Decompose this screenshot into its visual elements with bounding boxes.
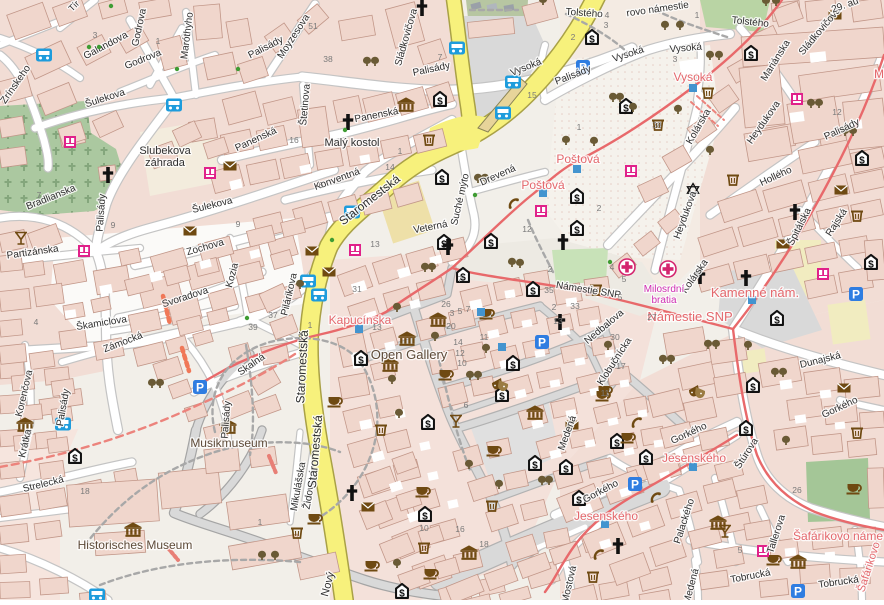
svg-text:38: 38 xyxy=(323,54,333,64)
svg-text:Šafárikovo náme: Šafárikovo náme xyxy=(793,528,883,543)
svg-text:Musikmuseum: Musikmuseum xyxy=(190,436,267,450)
svg-text:18: 18 xyxy=(479,539,489,549)
svg-text:Open Gallery: Open Gallery xyxy=(371,347,448,362)
svg-text:51: 51 xyxy=(308,21,318,31)
svg-text:31: 31 xyxy=(352,284,362,294)
svg-text:5: 5 xyxy=(738,545,743,555)
svg-text:7: 7 xyxy=(466,304,471,314)
svg-text:Kamenné nám.: Kamenné nám. xyxy=(711,285,799,300)
svg-text:7: 7 xyxy=(37,190,42,200)
svg-text:Jesenského: Jesenského xyxy=(662,451,726,465)
svg-text:7: 7 xyxy=(438,52,443,62)
svg-text:Kapucínska: Kapucínska xyxy=(329,313,392,327)
svg-text:Slubekova: Slubekova xyxy=(139,145,191,157)
svg-text:13: 13 xyxy=(372,322,382,332)
svg-text:3: 3 xyxy=(604,20,609,30)
svg-text:12: 12 xyxy=(522,224,532,234)
svg-text:1: 1 xyxy=(577,122,582,132)
svg-text:16: 16 xyxy=(289,135,299,145)
svg-text:11: 11 xyxy=(480,332,489,342)
svg-text:Milosrdní: Milosrdní xyxy=(644,284,685,295)
svg-text:39: 39 xyxy=(248,322,258,332)
svg-text:2: 2 xyxy=(571,32,576,42)
svg-text:7: 7 xyxy=(458,274,463,284)
svg-text:2: 2 xyxy=(548,264,553,274)
svg-text:Poštová: Poštová xyxy=(521,178,565,192)
svg-text:10: 10 xyxy=(457,358,467,368)
svg-text:4: 4 xyxy=(605,10,610,20)
svg-text:37: 37 xyxy=(268,310,278,320)
svg-text:Námestie SNP: Námestie SNP xyxy=(647,309,732,324)
svg-text:14: 14 xyxy=(385,162,395,172)
svg-text:Jesenského: Jesenského xyxy=(574,509,638,523)
svg-text:2: 2 xyxy=(552,302,557,312)
svg-text:1: 1 xyxy=(308,320,313,330)
svg-text:4: 4 xyxy=(34,317,39,327)
svg-text:2: 2 xyxy=(597,203,602,213)
svg-text:13: 13 xyxy=(370,239,380,249)
svg-text:30: 30 xyxy=(610,332,620,342)
svg-text:26: 26 xyxy=(792,485,802,495)
svg-text:Vysoká: Vysoká xyxy=(674,70,713,84)
svg-text:17: 17 xyxy=(616,361,626,371)
svg-text:bratia: bratia xyxy=(651,295,676,306)
svg-text:Historisches Museum: Historisches Museum xyxy=(78,538,193,552)
svg-text:9: 9 xyxy=(236,219,241,229)
svg-text:12: 12 xyxy=(455,348,465,358)
svg-text:20: 20 xyxy=(446,321,456,331)
svg-text:16: 16 xyxy=(455,524,465,534)
svg-text:6: 6 xyxy=(464,400,469,410)
svg-text:6: 6 xyxy=(319,180,324,190)
svg-text:1: 1 xyxy=(398,146,403,156)
svg-text:1: 1 xyxy=(156,36,161,46)
svg-text:3: 3 xyxy=(93,30,98,40)
svg-text:13: 13 xyxy=(553,316,563,326)
svg-text:M: M xyxy=(874,67,884,81)
svg-text:3: 3 xyxy=(298,332,303,342)
svg-text:18: 18 xyxy=(80,486,90,496)
svg-text:14: 14 xyxy=(453,337,463,347)
svg-text:9: 9 xyxy=(111,220,116,230)
svg-text:Poštová: Poštová xyxy=(556,152,600,166)
svg-text:12: 12 xyxy=(832,107,842,117)
svg-text:38: 38 xyxy=(652,120,662,130)
svg-text:5: 5 xyxy=(622,274,627,284)
svg-text:3: 3 xyxy=(450,308,455,318)
svg-text:Malý kostol: Malý kostol xyxy=(324,137,379,149)
svg-text:1: 1 xyxy=(258,517,263,527)
svg-text:35: 35 xyxy=(544,285,554,295)
svg-text:5: 5 xyxy=(458,306,463,316)
svg-text:1: 1 xyxy=(695,10,700,20)
svg-text:10: 10 xyxy=(419,523,429,533)
svg-text:3: 3 xyxy=(673,54,678,64)
svg-text:33: 33 xyxy=(570,301,580,311)
svg-text:11: 11 xyxy=(601,388,610,398)
svg-text:27: 27 xyxy=(647,312,657,322)
svg-text:5: 5 xyxy=(618,292,623,302)
svg-text:záhrada: záhrada xyxy=(145,157,186,169)
svg-text:15: 15 xyxy=(527,90,537,100)
